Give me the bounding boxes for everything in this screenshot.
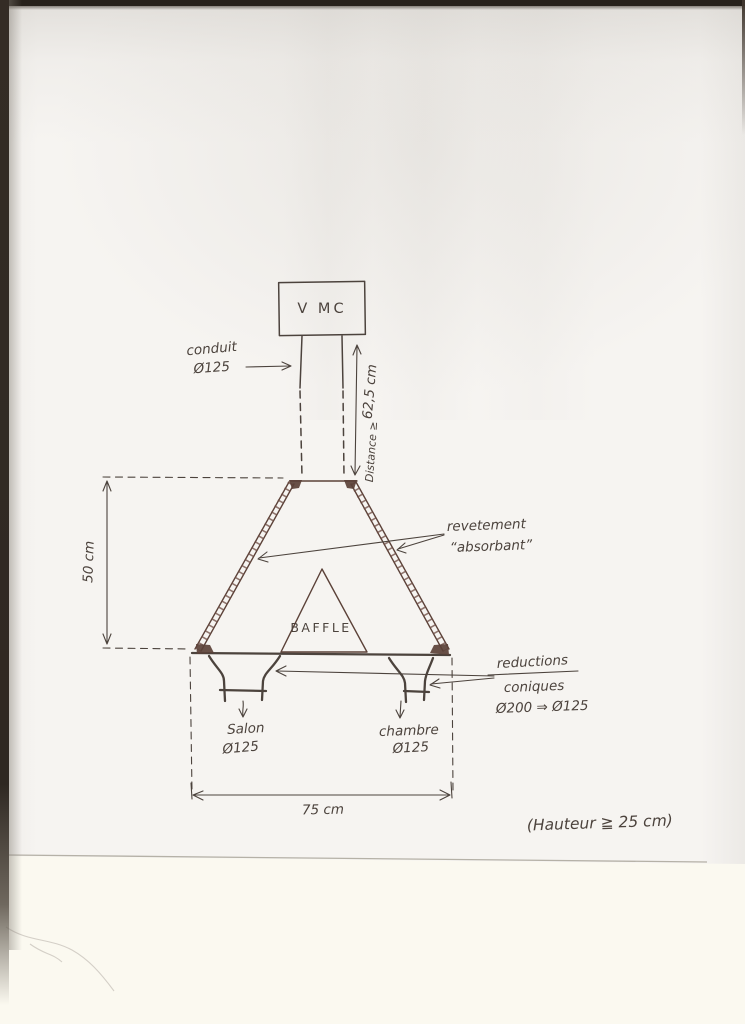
duct-dashed-lines bbox=[300, 391, 344, 477]
duct-solid-lines bbox=[300, 336, 343, 388]
reducer-left-side-b bbox=[262, 656, 280, 700]
reduction-label-line1: reductions bbox=[496, 652, 568, 672]
coating-label-line1: revetement bbox=[447, 516, 527, 535]
outlet-left-callout: Salon Ø125 bbox=[221, 701, 265, 758]
vmc-unit: V MC bbox=[279, 281, 366, 335]
extension-line-right bbox=[452, 658, 453, 792]
funnel-right-wall-hatching bbox=[353, 483, 446, 650]
funnel-bottom-edge bbox=[192, 653, 450, 655]
reducer-left bbox=[209, 656, 280, 701]
conduit-diameter: Ø125 bbox=[192, 359, 230, 378]
scan-border-left bbox=[0, 0, 9, 1005]
outlet-right-name: chambre bbox=[379, 722, 439, 740]
reducer-left-side-a bbox=[209, 656, 225, 701]
funnel-left-wall-hatching bbox=[198, 483, 291, 650]
coating-arrow-left bbox=[259, 534, 444, 558]
vmc-label: V MC bbox=[297, 301, 346, 317]
bottom-flange-left bbox=[196, 644, 214, 654]
reduction-label-line3: Ø200 ⇒ Ø125 bbox=[495, 698, 589, 717]
conduit-arrow bbox=[246, 366, 290, 367]
baffle-triangle bbox=[281, 569, 367, 652]
dim-75-label: 75 cm bbox=[302, 802, 344, 819]
distance-dim-line bbox=[355, 346, 357, 474]
scanned-sheet: V MC conduit Ø125 62,5 cm Distance ≥ bbox=[0, 0, 745, 1024]
distance-value: 62,5 cm bbox=[360, 364, 381, 420]
distance-dimension: 62,5 cm Distance ≥ bbox=[351, 345, 380, 483]
reducer-right-collar bbox=[404, 691, 429, 692]
outlet-right-callout: chambre Ø125 bbox=[379, 701, 439, 757]
outlet-right-arrow bbox=[400, 701, 401, 717]
height-dimension-50cm: 50 cm bbox=[80, 477, 283, 649]
reducer-right-side-b bbox=[424, 658, 433, 700]
reducer-left-collar bbox=[220, 690, 266, 691]
baffle-label: BAFFLE bbox=[290, 620, 351, 635]
baffle: BAFFLE bbox=[281, 569, 367, 652]
extension-line-bottom bbox=[103, 648, 190, 649]
distance-word: Distance ≥ bbox=[363, 421, 380, 483]
scanned-document-page: { "colors": { "ink": "#4c433d", "funnel_… bbox=[0, 0, 745, 1024]
outlet-right-diameter: Ø125 bbox=[391, 739, 429, 757]
outlet-left-name: Salon bbox=[227, 720, 265, 738]
height-note: (Hauteur ≧ 25 cm) bbox=[527, 811, 674, 834]
neck-flange-right bbox=[344, 480, 357, 489]
scanner-background bbox=[0, 856, 745, 1024]
neck-flange-left bbox=[289, 480, 302, 489]
outlet-left-arrow bbox=[243, 701, 244, 716]
duct bbox=[300, 336, 344, 477]
reducer-right-side-a bbox=[389, 658, 406, 702]
scan-border-top-fade bbox=[0, 6, 745, 10]
reducer-right bbox=[389, 658, 433, 702]
scan-border-left-fade bbox=[9, 0, 22, 950]
extension-line-left bbox=[190, 657, 192, 792]
dim-75-tick-right bbox=[451, 782, 452, 798]
reduction-arrow-left bbox=[277, 671, 494, 676]
extension-line-top bbox=[103, 477, 283, 478]
conduit-callout: conduit Ø125 bbox=[186, 339, 291, 378]
conduit-label: conduit bbox=[186, 339, 238, 359]
coating-label-line2: “absorbant” bbox=[450, 537, 534, 556]
outlet-left-diameter: Ø125 bbox=[221, 738, 260, 757]
coating-callout: revetement “absorbant” bbox=[258, 516, 533, 562]
reduction-arrow-right bbox=[431, 678, 494, 684]
vmc-baffle-schematic: V MC conduit Ø125 62,5 cm Distance ≥ bbox=[0, 0, 745, 1024]
reduction-label-line2: coniques bbox=[504, 678, 565, 696]
bottom-flange-right bbox=[430, 644, 449, 655]
dim-50-label: 50 cm bbox=[80, 541, 97, 584]
